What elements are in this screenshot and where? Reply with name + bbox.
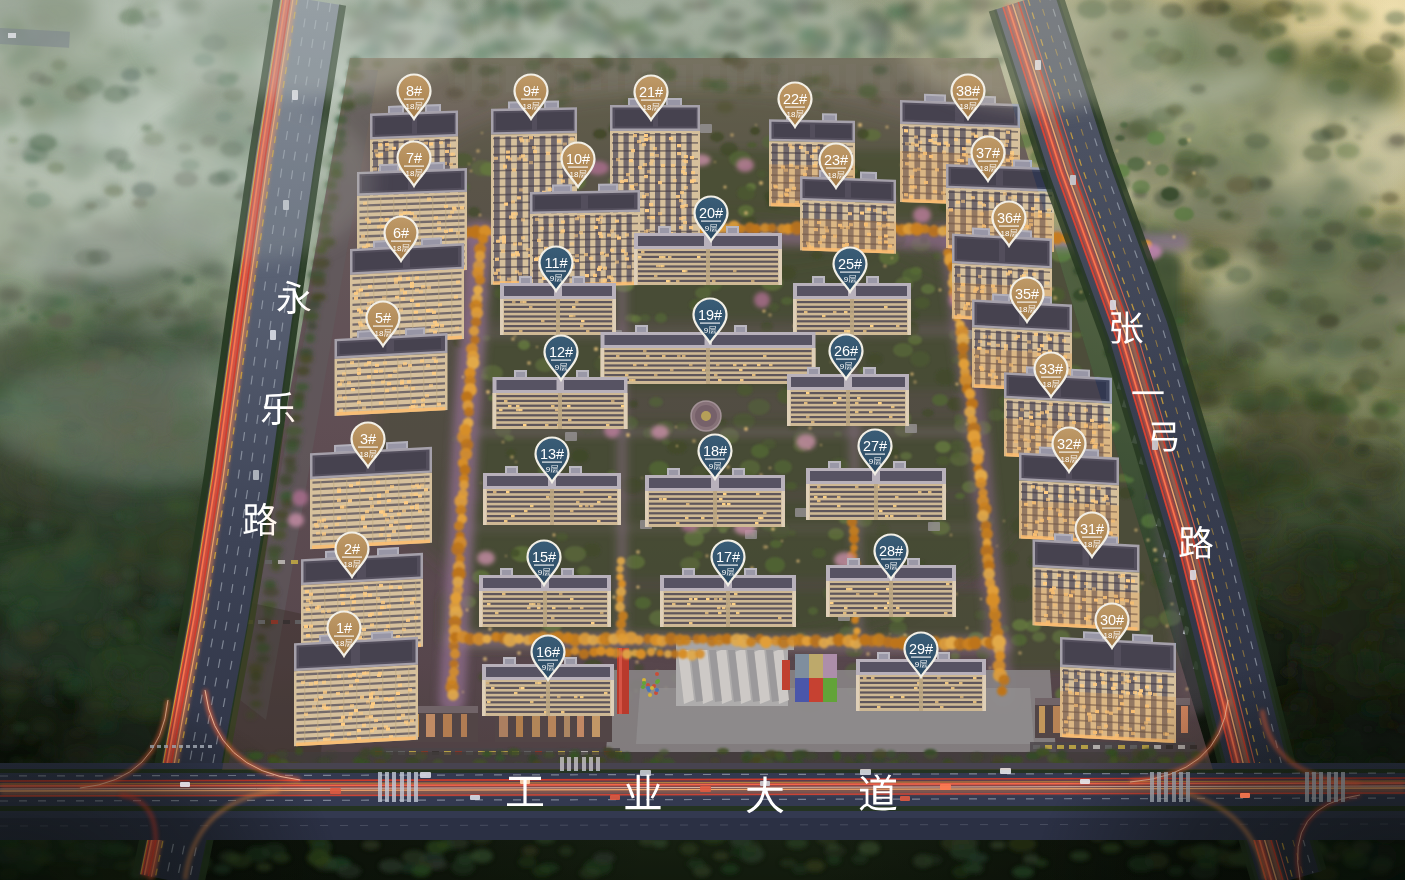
svg-text:9: 9 [869,457,874,466]
svg-text:15#: 15# [532,549,556,565]
svg-text:18: 18 [523,102,532,111]
svg-text:9: 9 [915,660,920,669]
svg-text:18: 18 [406,102,415,111]
svg-text:18: 18 [406,169,415,178]
svg-text:33#: 33# [1039,361,1063,377]
svg-text:18#: 18# [703,443,727,459]
svg-text:17#: 17# [716,549,740,565]
svg-text:20#: 20# [699,205,723,221]
svg-text:35#: 35# [1015,286,1039,302]
svg-text:1#: 1# [336,620,352,636]
svg-text:9: 9 [844,275,849,284]
svg-text:18: 18 [1104,631,1113,640]
svg-text:18: 18 [344,560,353,569]
svg-text:9: 9 [704,326,709,335]
svg-text:11#: 11# [544,255,567,271]
svg-text:25#: 25# [838,256,862,272]
svg-text:9: 9 [542,663,547,672]
svg-text:16#: 16# [536,644,560,660]
svg-text:13#: 13# [540,446,564,462]
svg-text:18: 18 [1001,229,1010,238]
svg-text:21#: 21# [639,84,663,100]
svg-text:18: 18 [828,171,837,180]
svg-text:30#: 30# [1100,612,1124,628]
svg-text:36#: 36# [997,210,1021,226]
svg-text:26#: 26# [834,343,858,359]
svg-text:12#: 12# [549,344,573,360]
svg-text:18: 18 [1061,455,1070,464]
svg-text:3#: 3# [360,431,376,447]
svg-text:7#: 7# [406,150,422,166]
svg-text:18: 18 [643,103,652,112]
svg-text:9: 9 [538,568,543,577]
svg-text:31#: 31# [1080,521,1104,537]
svg-text:18: 18 [336,639,345,648]
svg-text:29#: 29# [909,641,933,657]
svg-text:9: 9 [546,465,551,474]
svg-text:2#: 2# [344,541,360,557]
svg-text:19#: 19# [698,307,722,323]
svg-text:18: 18 [1043,380,1052,389]
svg-text:10#: 10# [566,151,590,167]
svg-text:9: 9 [555,363,560,372]
svg-text:9: 9 [705,224,710,233]
svg-text:8#: 8# [406,83,422,99]
svg-text:9: 9 [709,462,714,471]
svg-text:28#: 28# [879,543,903,559]
svg-text:18: 18 [960,102,969,111]
svg-text:5#: 5# [375,310,391,326]
svg-text:22#: 22# [783,91,807,107]
svg-text:18: 18 [980,164,989,173]
svg-text:18: 18 [360,450,369,459]
svg-text:27#: 27# [863,438,887,454]
svg-text:37#: 37# [976,145,1000,161]
svg-text:18: 18 [375,329,384,338]
svg-text:9#: 9# [523,83,539,99]
svg-text:18: 18 [1084,540,1093,549]
svg-text:23#: 23# [824,152,848,168]
svg-text:18: 18 [393,244,402,253]
svg-text:9: 9 [885,562,890,571]
svg-text:18: 18 [570,170,579,179]
svg-text:9: 9 [840,362,845,371]
svg-text:18: 18 [787,110,796,119]
svg-text:38#: 38# [956,83,980,99]
svg-text:18: 18 [1019,305,1028,314]
svg-text:9: 9 [550,274,555,283]
svg-text:6#: 6# [393,225,409,241]
svg-text:32#: 32# [1057,436,1081,452]
svg-text:9: 9 [722,568,727,577]
